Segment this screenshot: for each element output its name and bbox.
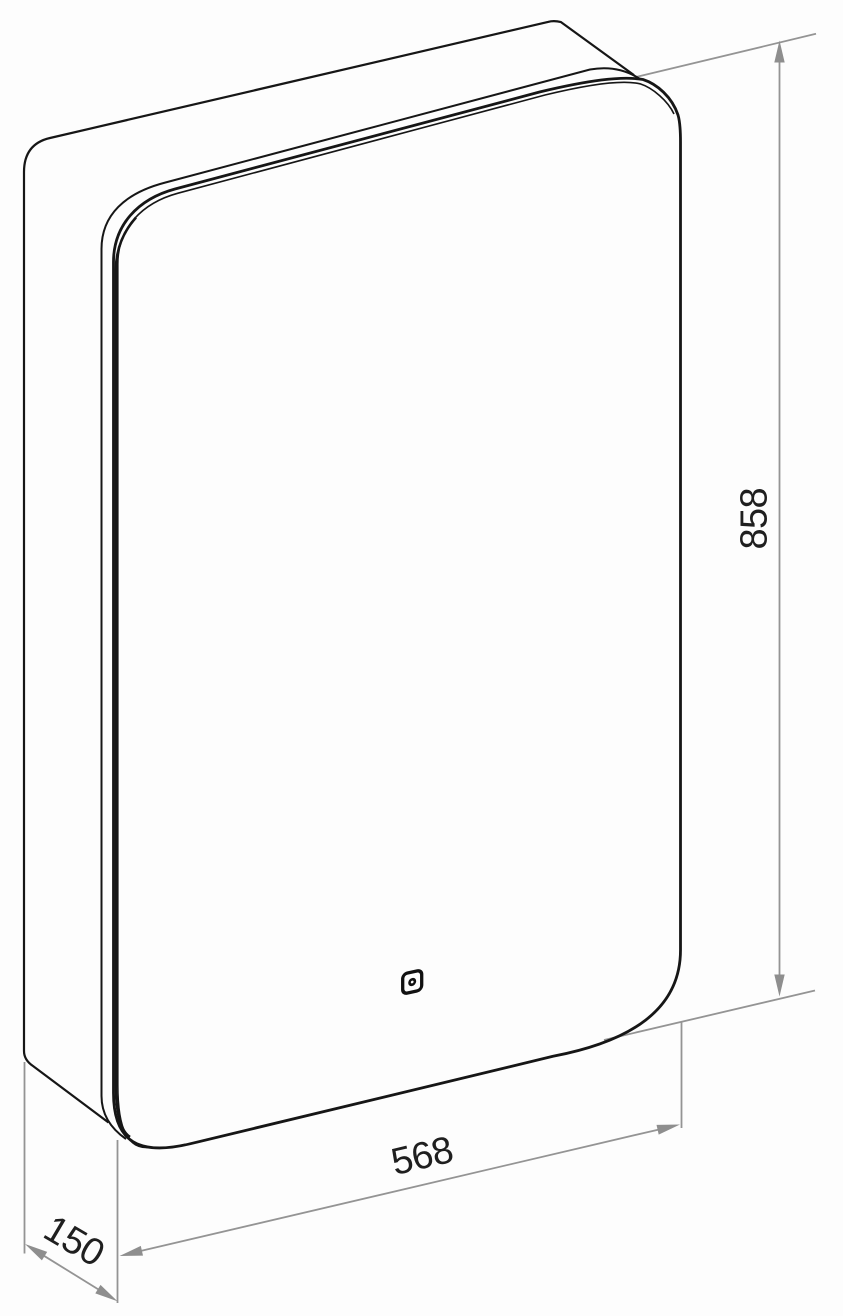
svg-text:858: 858 (733, 488, 775, 550)
svg-text:568: 568 (387, 1129, 457, 1184)
svg-text:150: 150 (37, 1208, 111, 1275)
